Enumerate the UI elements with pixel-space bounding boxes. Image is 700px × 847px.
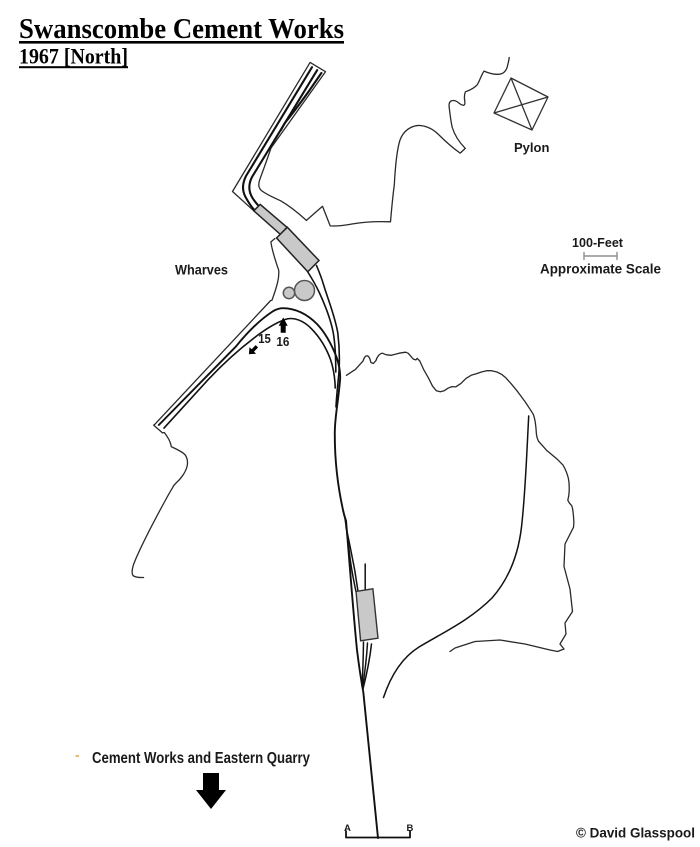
svg-text:1967 [North]: 1967 [North] [19,44,128,69]
svg-text:A: A [344,823,351,834]
svg-text:© David Glasspool: © David Glasspool [576,826,695,841]
svg-text:Pylon: Pylon [514,140,549,155]
svg-text:B: B [407,823,414,834]
svg-text:Swanscombe Cement Works: Swanscombe Cement Works [19,14,344,45]
svg-text:Wharves: Wharves [175,262,228,278]
svg-text:16: 16 [276,334,289,349]
svg-text:Cement Works and Eastern Quarr: Cement Works and Eastern Quarry [92,750,310,767]
svg-text:100-Feet: 100-Feet [572,235,624,250]
svg-text:15: 15 [258,331,271,346]
svg-text:Approximate Scale: Approximate Scale [540,262,661,277]
